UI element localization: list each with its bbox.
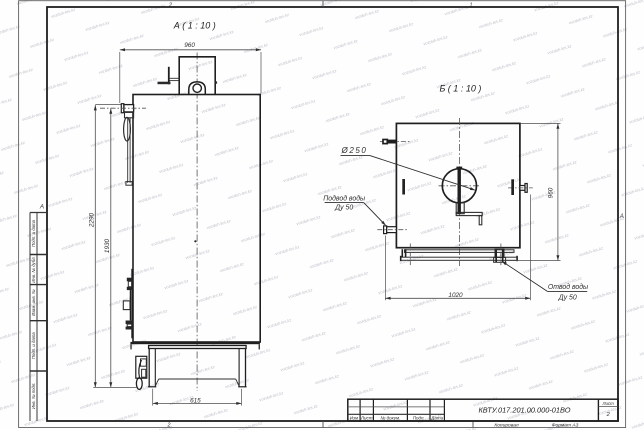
svg-text:Инв. № подл.: Инв. № подл. xyxy=(31,382,36,409)
svg-text:2290: 2290 xyxy=(89,212,96,228)
svg-text:615: 615 xyxy=(190,398,201,405)
svg-text:Отвод воды: Отвод воды xyxy=(548,283,588,291)
svg-text:Дата: Дата xyxy=(430,415,443,420)
svg-text:КВТУ.017.201.00.000-01ВО: КВТУ.017.201.00.000-01ВО xyxy=(478,405,570,414)
svg-text:А ( 1 : 10 ): А ( 1 : 10 ) xyxy=(173,20,216,30)
svg-text:960: 960 xyxy=(547,187,554,198)
svg-text:А: А xyxy=(39,204,44,211)
svg-text:Копировал: Копировал xyxy=(494,422,519,428)
svg-text:Б ( 1 : 10 ): Б ( 1 : 10 ) xyxy=(439,84,481,94)
svg-text:Формат А3: Формат А3 xyxy=(552,422,579,428)
svg-text:1020: 1020 xyxy=(448,292,463,299)
svg-text:Ду 50: Ду 50 xyxy=(558,295,577,302)
svg-text:Подп.: Подп. xyxy=(413,415,425,420)
svg-text:Ø250: Ø250 xyxy=(341,146,368,155)
svg-text:1: 1 xyxy=(470,2,473,8)
svg-text:№ докум.: № докум. xyxy=(380,415,400,420)
svg-text:2: 2 xyxy=(168,2,172,8)
svg-text:Взам. инв. №: Взам. инв. № xyxy=(31,289,36,316)
svg-text:Подп. и дата: Подп. и дата xyxy=(31,219,36,247)
svg-text:Подп. и дата: Подп. и дата xyxy=(31,332,36,360)
svg-text:Изм: Изм xyxy=(350,415,358,420)
svg-text:960: 960 xyxy=(184,42,195,49)
svg-text:Лист: Лист xyxy=(602,401,615,406)
svg-text:1930: 1930 xyxy=(104,238,111,253)
svg-text:Инв. № дубл.: Инв. № дубл. xyxy=(31,256,36,282)
svg-text:А: А xyxy=(619,213,624,220)
svg-text:Подвод воды: Подвод воды xyxy=(323,194,365,202)
svg-text:Лист: Лист xyxy=(360,415,373,420)
svg-text:2: 2 xyxy=(167,423,171,429)
svg-text:Ду 50: Ду 50 xyxy=(334,205,353,212)
